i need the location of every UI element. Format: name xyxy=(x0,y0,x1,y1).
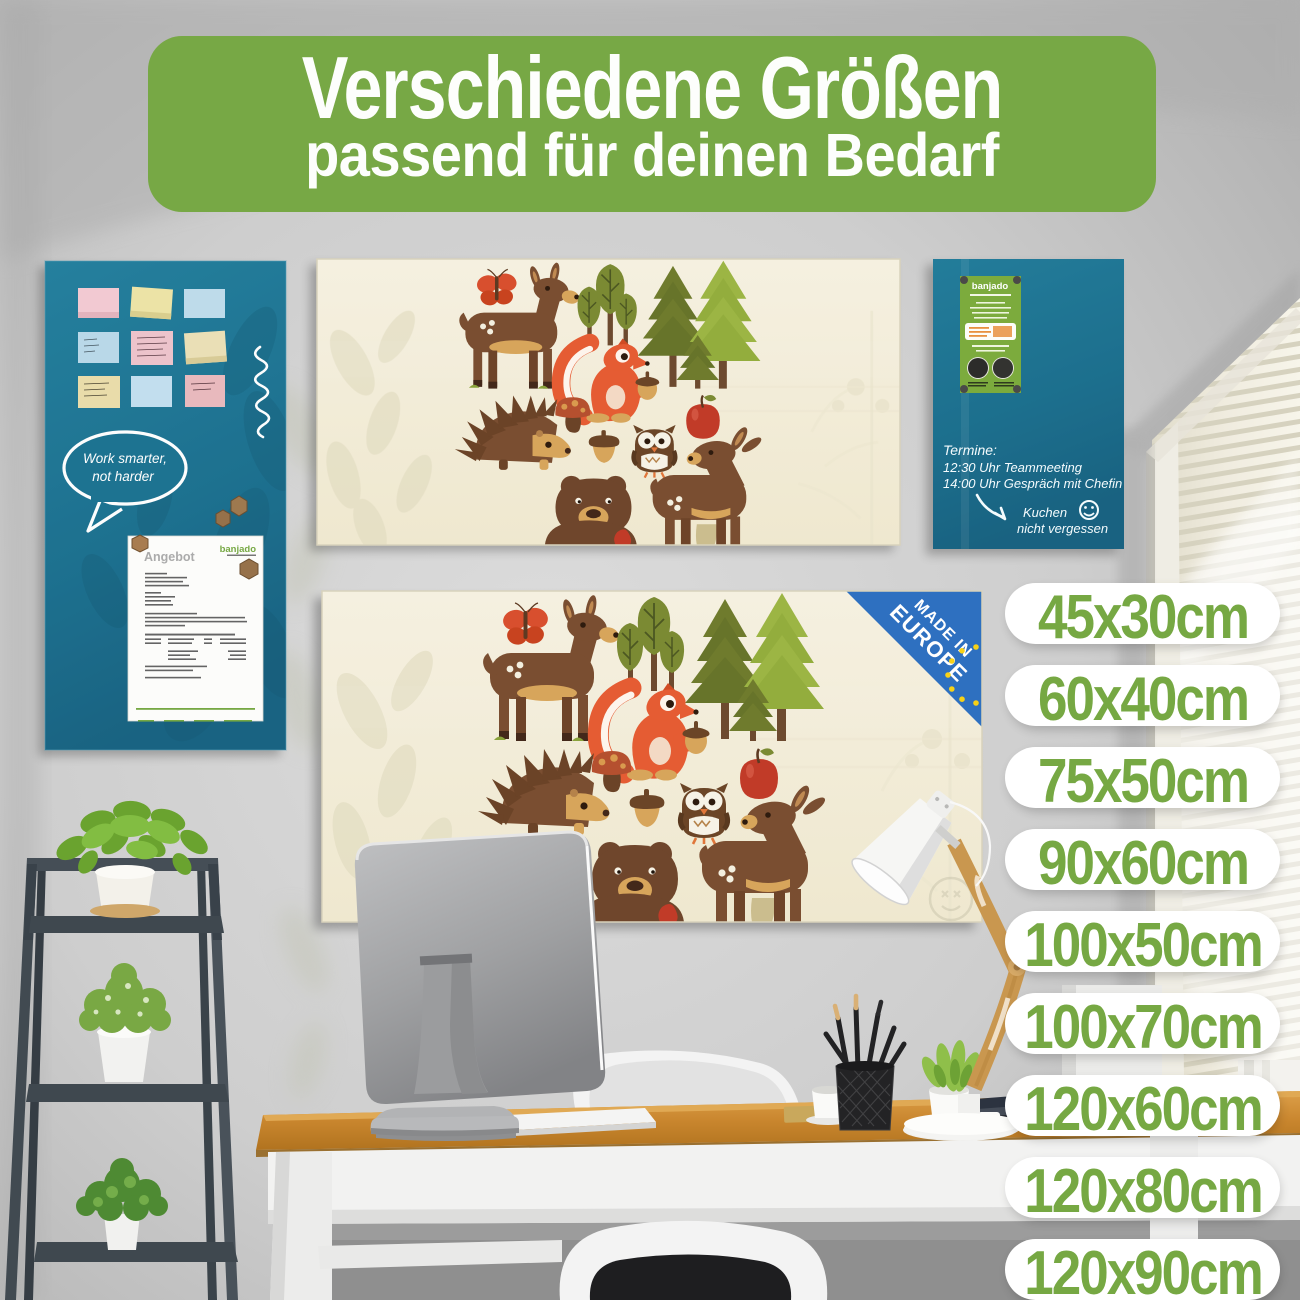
svg-text:90x60cm: 90x60cm xyxy=(1038,829,1248,898)
svg-text:Angebot: Angebot xyxy=(144,550,196,564)
svg-text:banjado: banjado xyxy=(972,281,1009,292)
svg-text:45x30cm: 45x30cm xyxy=(1038,583,1248,652)
svg-text:100x50cm: 100x50cm xyxy=(1024,911,1261,980)
svg-text:Termine:: Termine: xyxy=(943,442,997,458)
svg-text:120x80cm: 120x80cm xyxy=(1024,1157,1261,1226)
svg-text:14:00 Uhr Gespräch mit Chefin: 14:00 Uhr Gespräch mit Chefin xyxy=(943,476,1122,491)
svg-text:Work smarter,: Work smarter, xyxy=(83,451,167,466)
svg-text:120x90cm: 120x90cm xyxy=(1024,1239,1261,1300)
svg-text:Kuchen: Kuchen xyxy=(1023,505,1067,520)
svg-text:60x40cm: 60x40cm xyxy=(1038,665,1248,734)
svg-text:75x50cm: 75x50cm xyxy=(1038,747,1248,816)
svg-text:not harder: not harder xyxy=(92,469,154,484)
svg-text:100x70cm: 100x70cm xyxy=(1024,993,1261,1062)
svg-text:12:30 Uhr Teammeeting: 12:30 Uhr Teammeeting xyxy=(943,460,1083,475)
svg-text:passend für deinen Bedarf: passend für deinen Bedarf xyxy=(305,122,1000,190)
svg-text:120x60cm: 120x60cm xyxy=(1024,1075,1261,1144)
svg-text:nicht vergessen: nicht vergessen xyxy=(1017,521,1108,536)
svg-text:banjado: banjado xyxy=(220,544,257,555)
